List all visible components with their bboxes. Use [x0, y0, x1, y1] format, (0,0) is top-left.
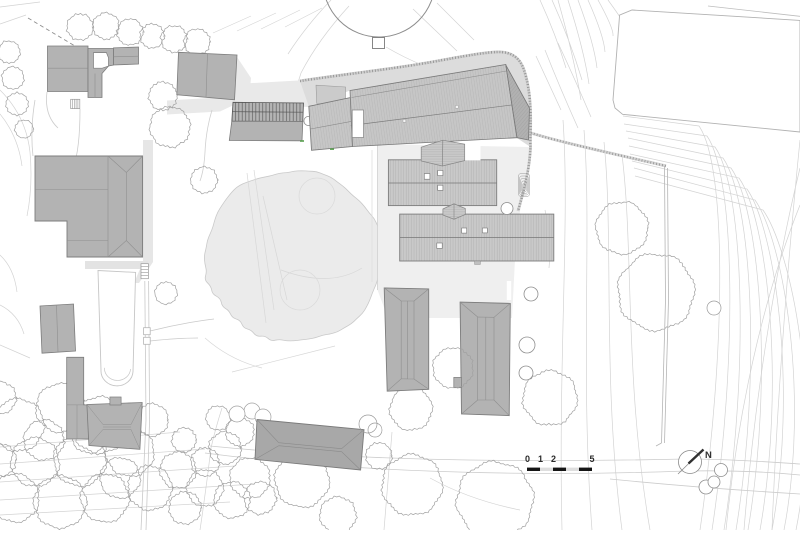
svg-text:5: 5	[589, 454, 594, 464]
svg-text:0: 0	[525, 454, 530, 464]
svg-text:N: N	[705, 450, 712, 461]
svg-text:2: 2	[551, 454, 556, 464]
svg-text:1: 1	[538, 454, 543, 464]
